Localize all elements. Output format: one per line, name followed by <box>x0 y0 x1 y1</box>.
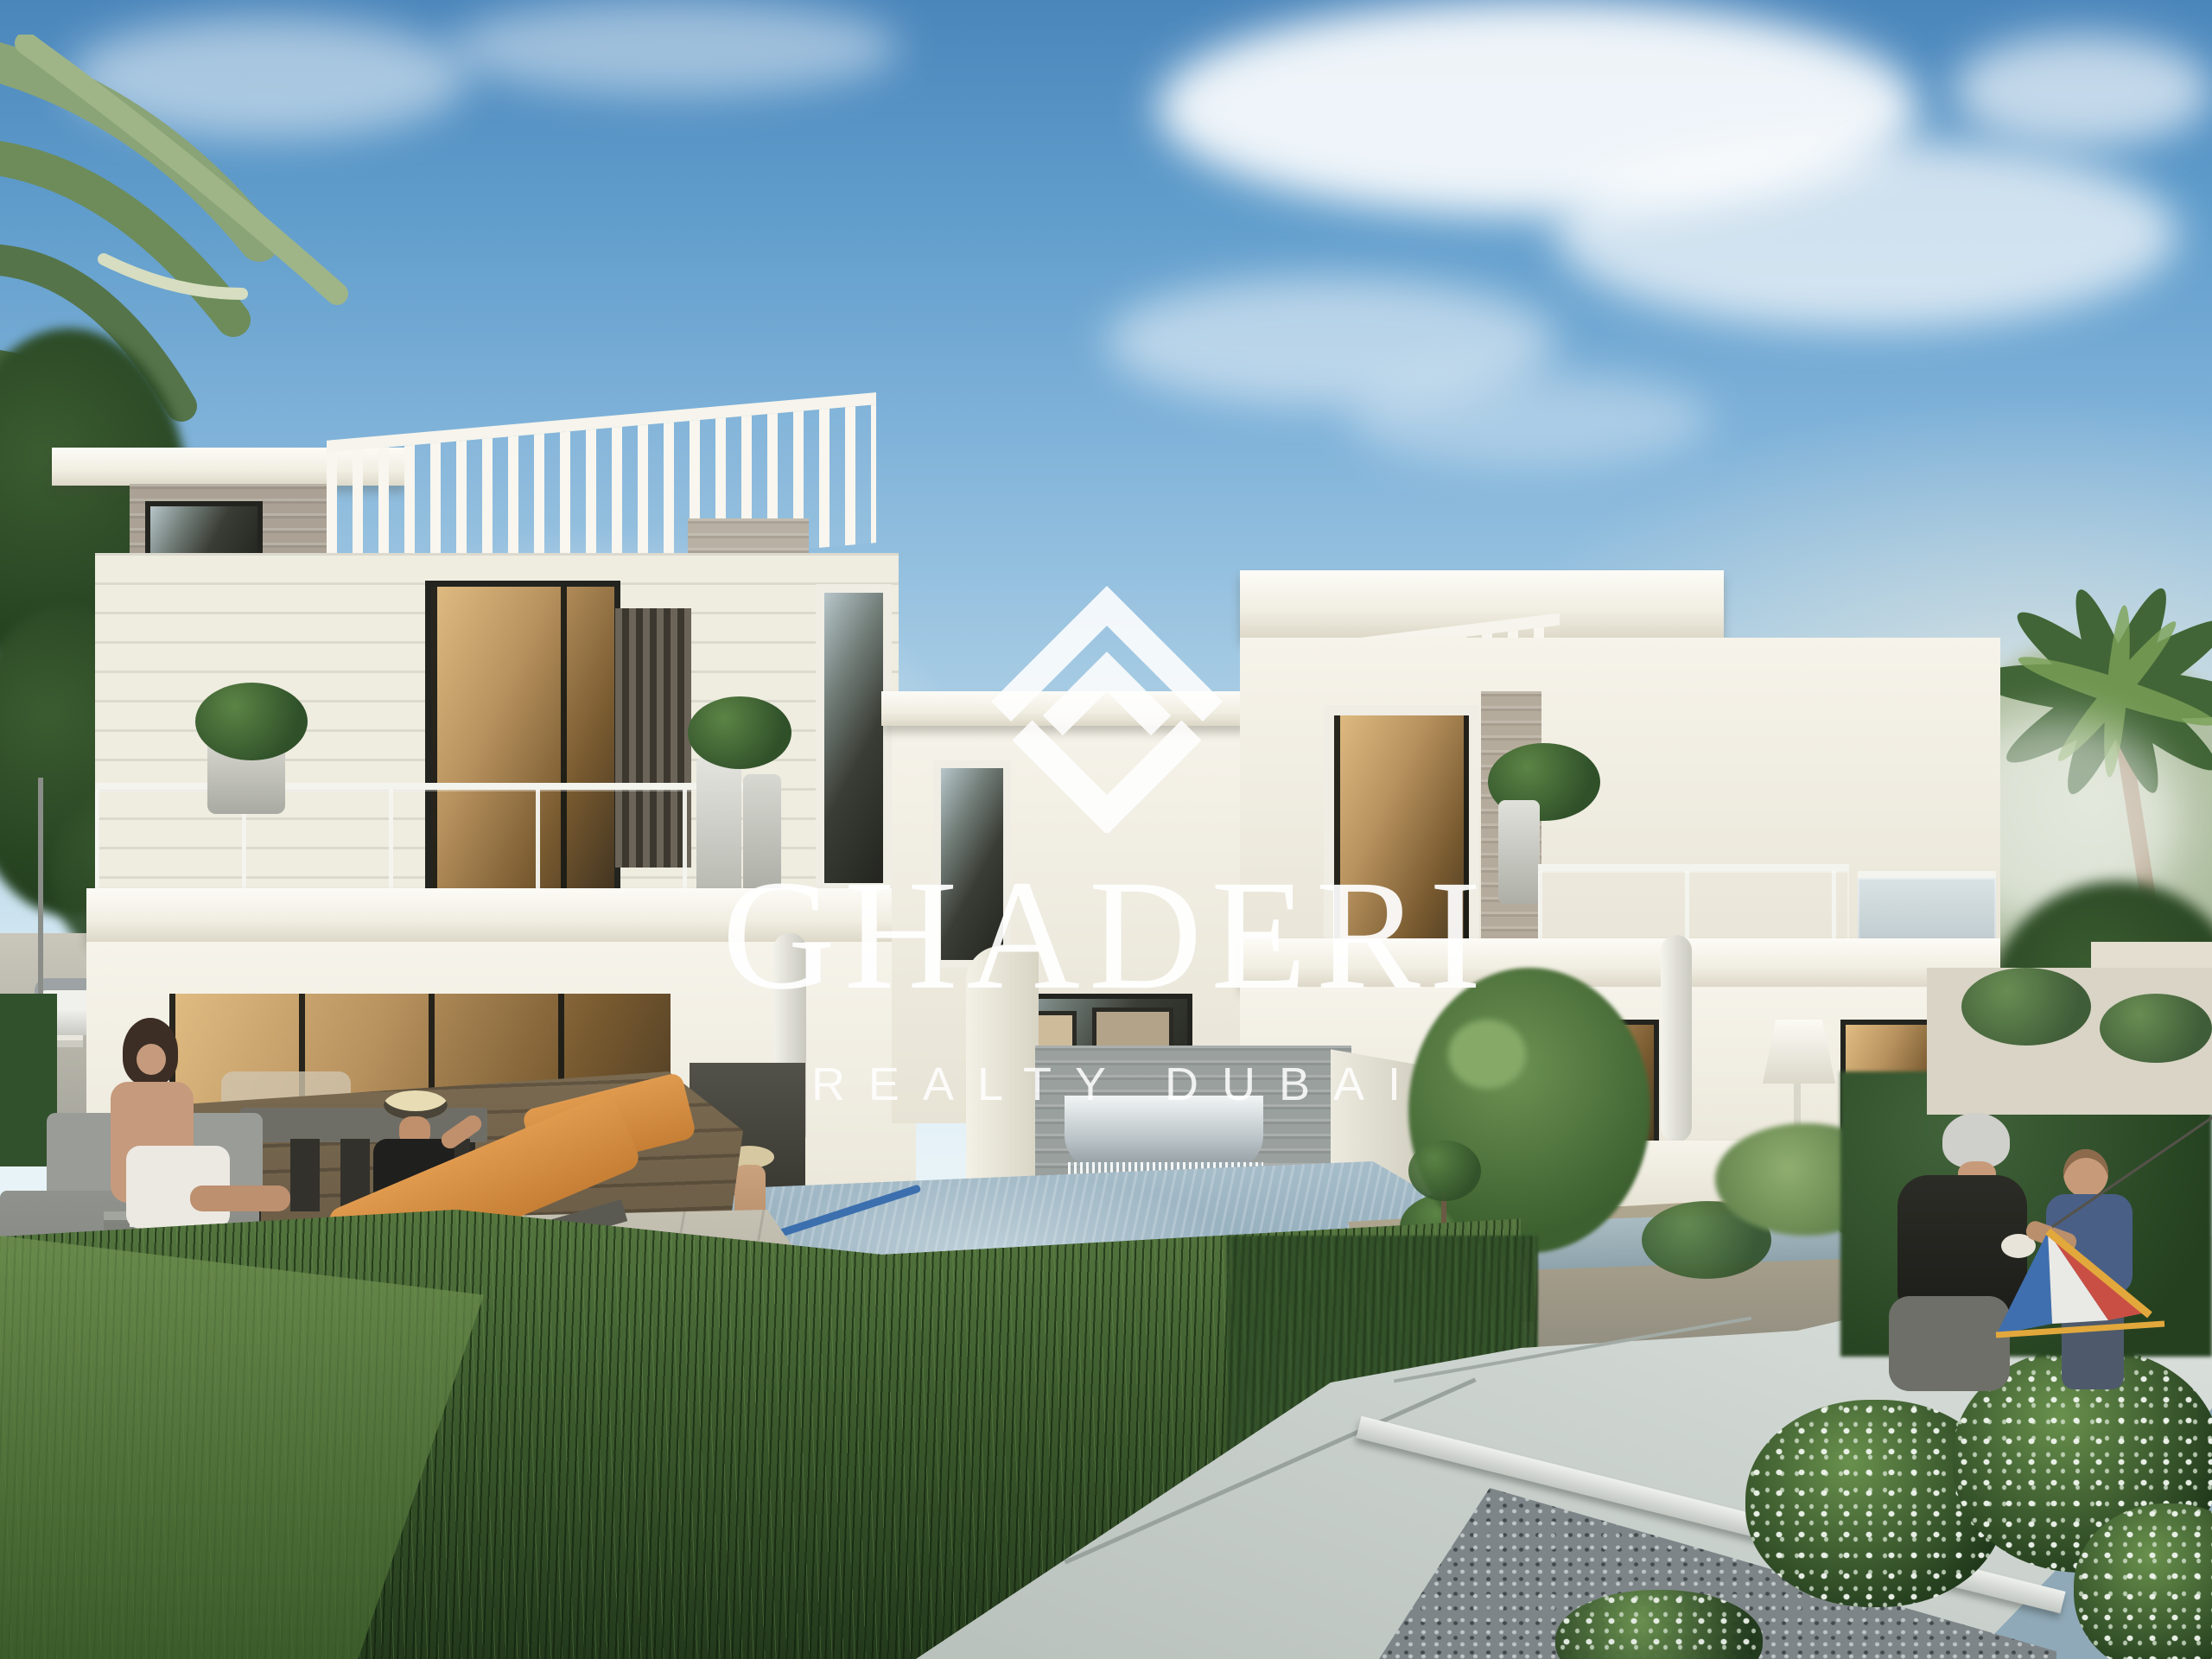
sapling-leaves <box>1408 1141 1481 1201</box>
diamond-monogram-icon <box>989 581 1224 833</box>
kite <box>1970 1097 2212 1374</box>
cloud <box>449 0 899 95</box>
woman-legs <box>190 1185 290 1211</box>
villa-exterior-rendering: GHADERI REALTY DUBAI <box>0 0 2212 1659</box>
cloud <box>1953 35 2212 147</box>
cloud <box>1348 372 1711 467</box>
cloud <box>1555 138 2177 328</box>
balcony-plant <box>195 683 308 760</box>
balcony-plant <box>688 696 791 769</box>
watermark-title: GHADERI <box>0 857 2212 1014</box>
center-tall-window <box>816 584 892 892</box>
watermark-subtitle: REALTY DUBAI <box>0 1061 2212 1108</box>
